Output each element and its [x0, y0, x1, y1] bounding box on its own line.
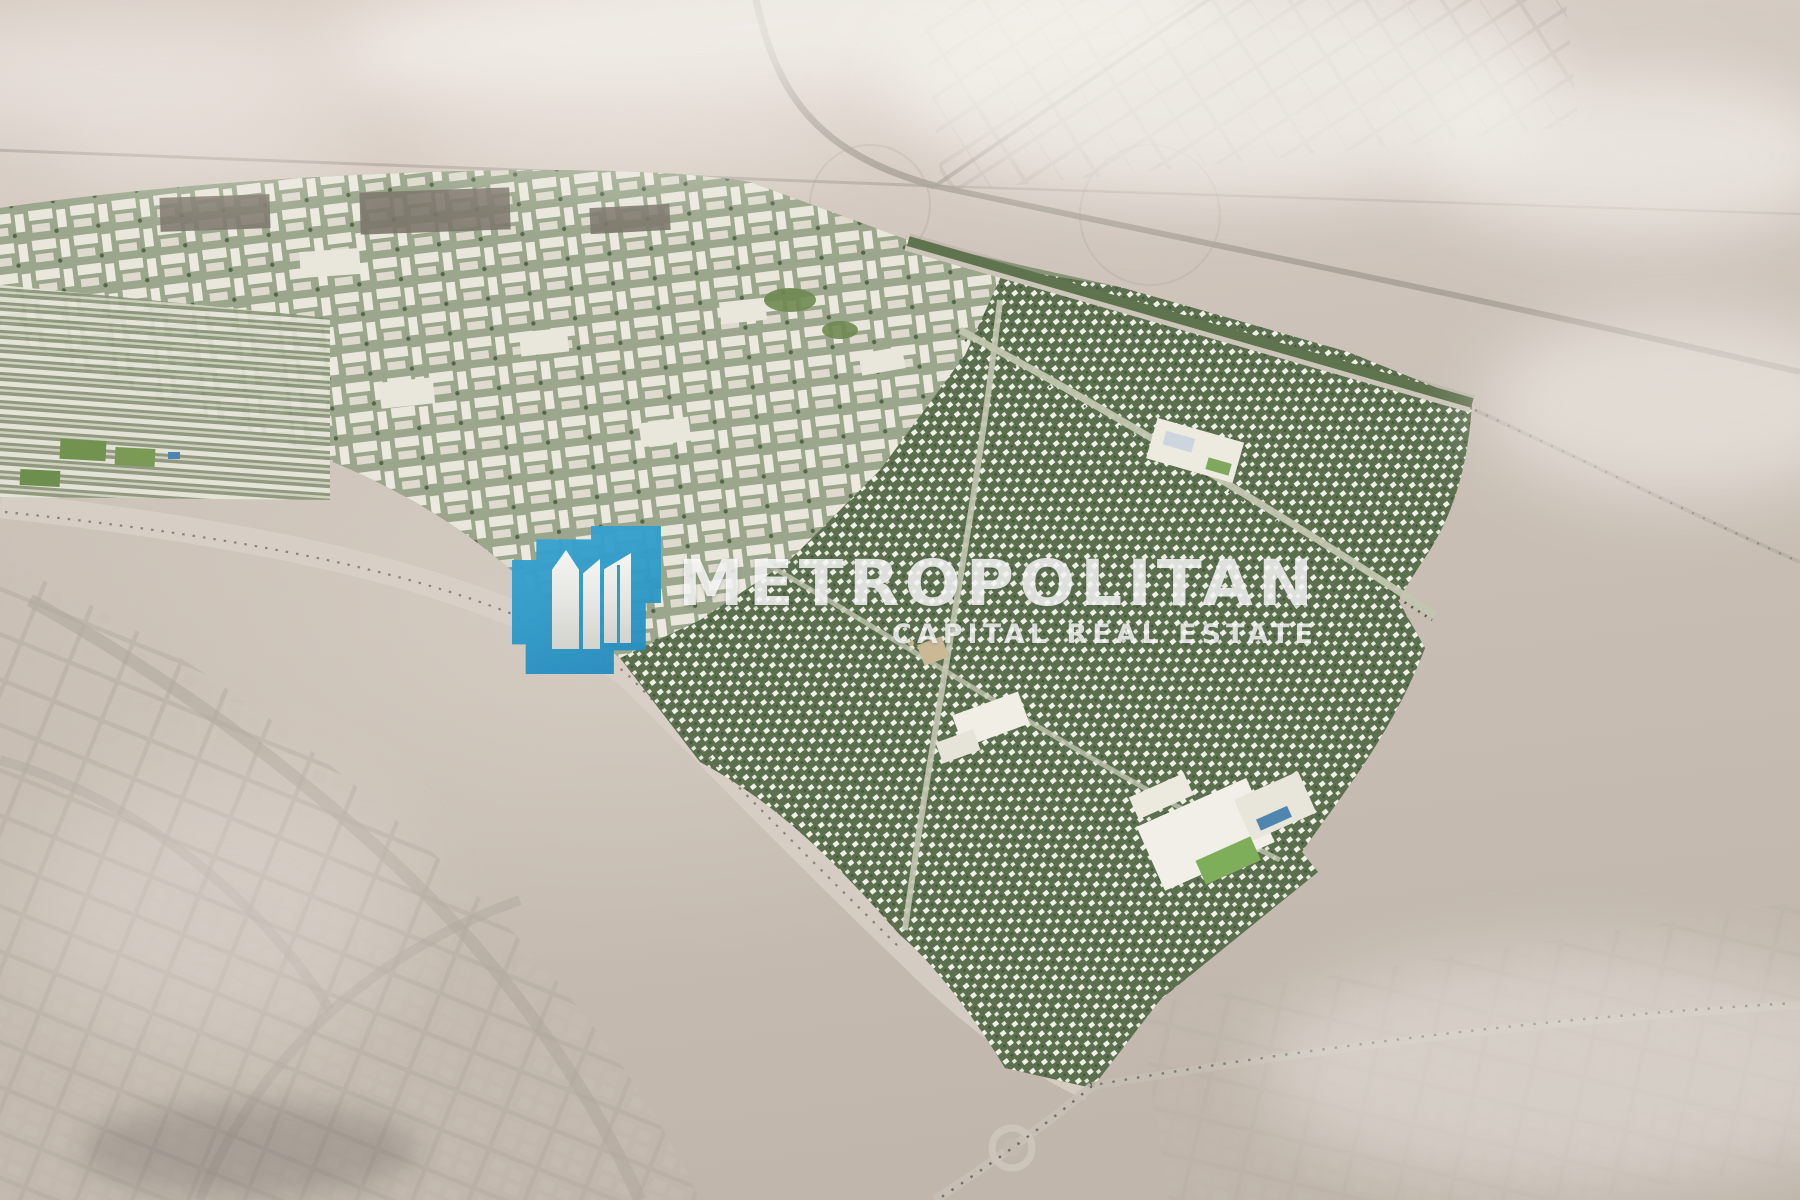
- desert-plots: [1139, 900, 1800, 1200]
- tower-left-icon: [552, 550, 579, 649]
- buildings-icon: [512, 526, 664, 674]
- aerial-rendering: METROPOLITAN CAPITAL REAL ESTATE: [0, 0, 1800, 1200]
- tower-middle-icon: [583, 559, 600, 649]
- tower-gap: [617, 565, 620, 643]
- farm-grid: [922, 0, 1578, 193]
- brand-title: METROPOLITAN: [678, 552, 1318, 615]
- terraced-rows: [0, 285, 330, 500]
- brand-subtitle: CAPITAL REAL ESTATE: [678, 621, 1318, 648]
- logo-text: METROPOLITAN CAPITAL REAL ESTATE: [678, 552, 1318, 648]
- watermark-logo: METROPOLITAN CAPITAL REAL ESTATE: [512, 526, 1318, 674]
